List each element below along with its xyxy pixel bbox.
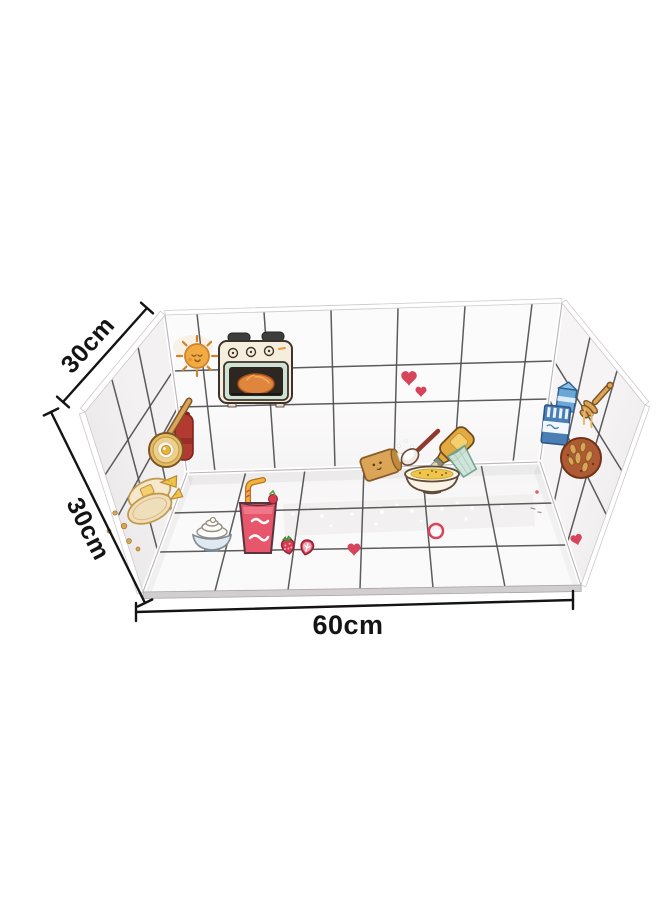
dimension-label-height: 30cm: [61, 493, 116, 564]
nut-cookie-illustration: [561, 438, 601, 478]
splash-guard-illustration: 30cm 30cm 60cm: [0, 0, 660, 900]
sun-illustration: [177, 336, 217, 376]
floor-red-dot: [535, 490, 539, 494]
oven-illustration: [219, 332, 292, 407]
dimension-label-width: 60cm: [312, 610, 383, 640]
product-photo: 30cm 30cm 60cm: [0, 0, 660, 900]
dimension-label-depth: 30cm: [56, 311, 121, 379]
dimension-bottom: 60cm: [136, 591, 573, 640]
milk-carton-large: [541, 405, 571, 446]
